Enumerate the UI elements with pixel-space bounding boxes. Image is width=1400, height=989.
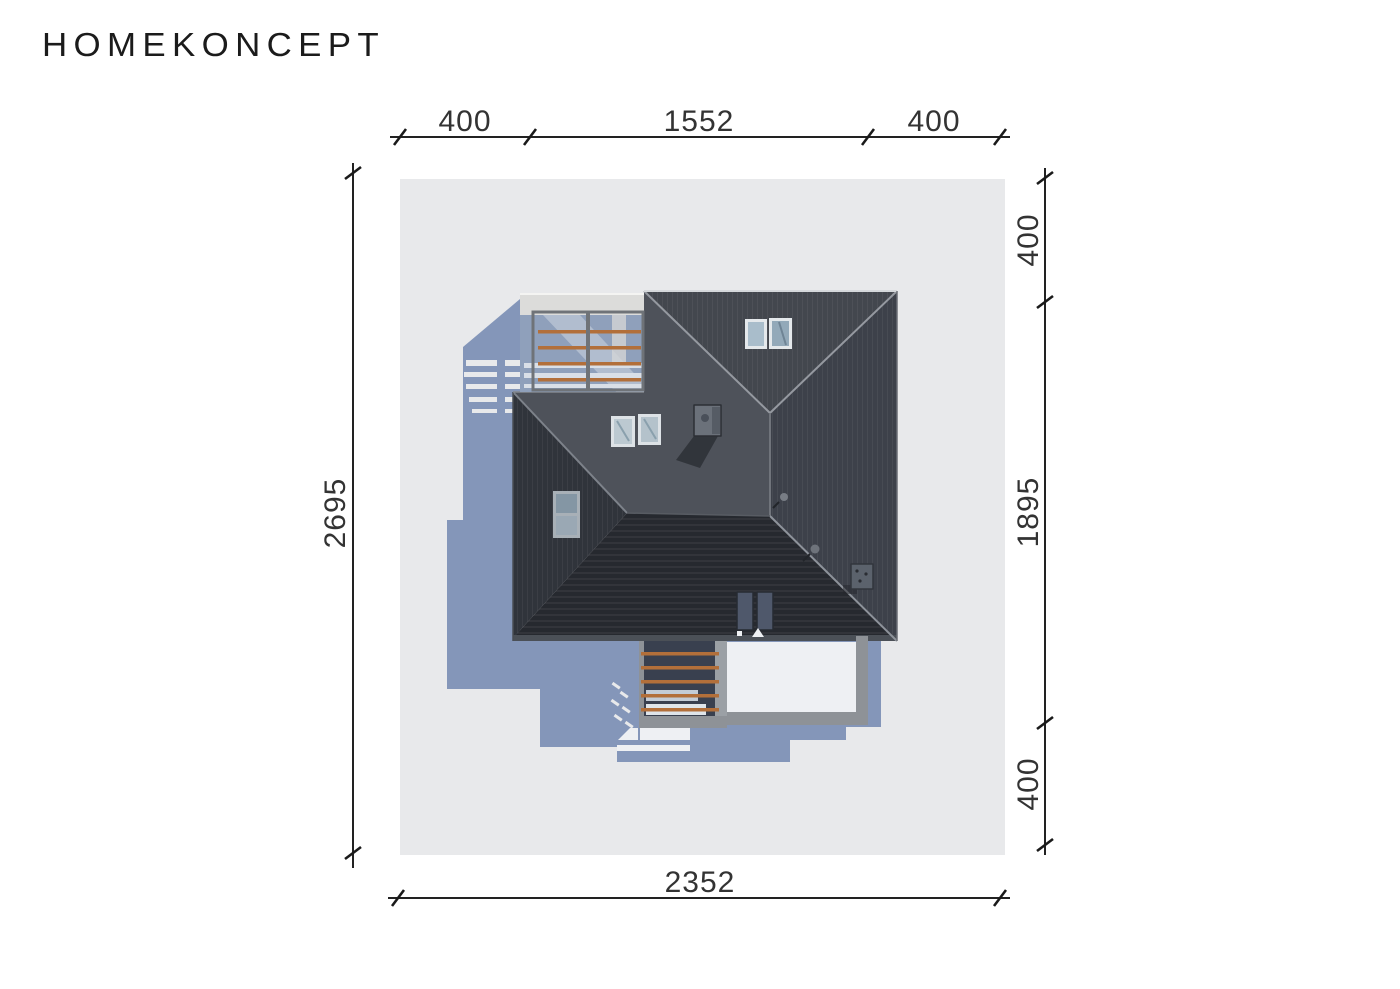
eave-fascia: [513, 635, 897, 641]
dim-right-top: 400: [1012, 213, 1045, 266]
brand-logo: HOMEKONCEPT: [42, 26, 385, 63]
dimension-bottom: 2352: [388, 866, 1010, 906]
drawing-page: HOMEKONCEPT: [0, 0, 1400, 989]
skylight-glass: [556, 494, 577, 513]
dim-bottom-total: 2352: [665, 866, 736, 899]
dimension-left: 2695: [319, 163, 361, 868]
dimension-top: 400 1552 400: [390, 105, 1010, 145]
skylight-wing: [553, 491, 580, 538]
balcony-floor-stripes: [524, 363, 642, 388]
dim-top-right: 400: [907, 105, 960, 138]
terrace-floor: [727, 642, 856, 712]
dim-left-total: 2695: [319, 478, 352, 549]
dim-top-middle: 1552: [664, 105, 735, 138]
balcony: [520, 293, 644, 392]
dim-top-left: 400: [438, 105, 491, 138]
skylight-glass: [748, 322, 764, 346]
dim-right-bottom: 400: [1012, 757, 1045, 810]
skylight-glass: [556, 516, 577, 535]
balcony-pillar: [612, 315, 626, 363]
terrace-steps: [617, 728, 690, 751]
vent-box: [851, 564, 873, 589]
site-plan-canvas: HOMEKONCEPT: [0, 0, 1400, 989]
dimension-right: 400 1895 400: [1012, 168, 1053, 855]
dim-right-middle: 1895: [1012, 477, 1045, 548]
